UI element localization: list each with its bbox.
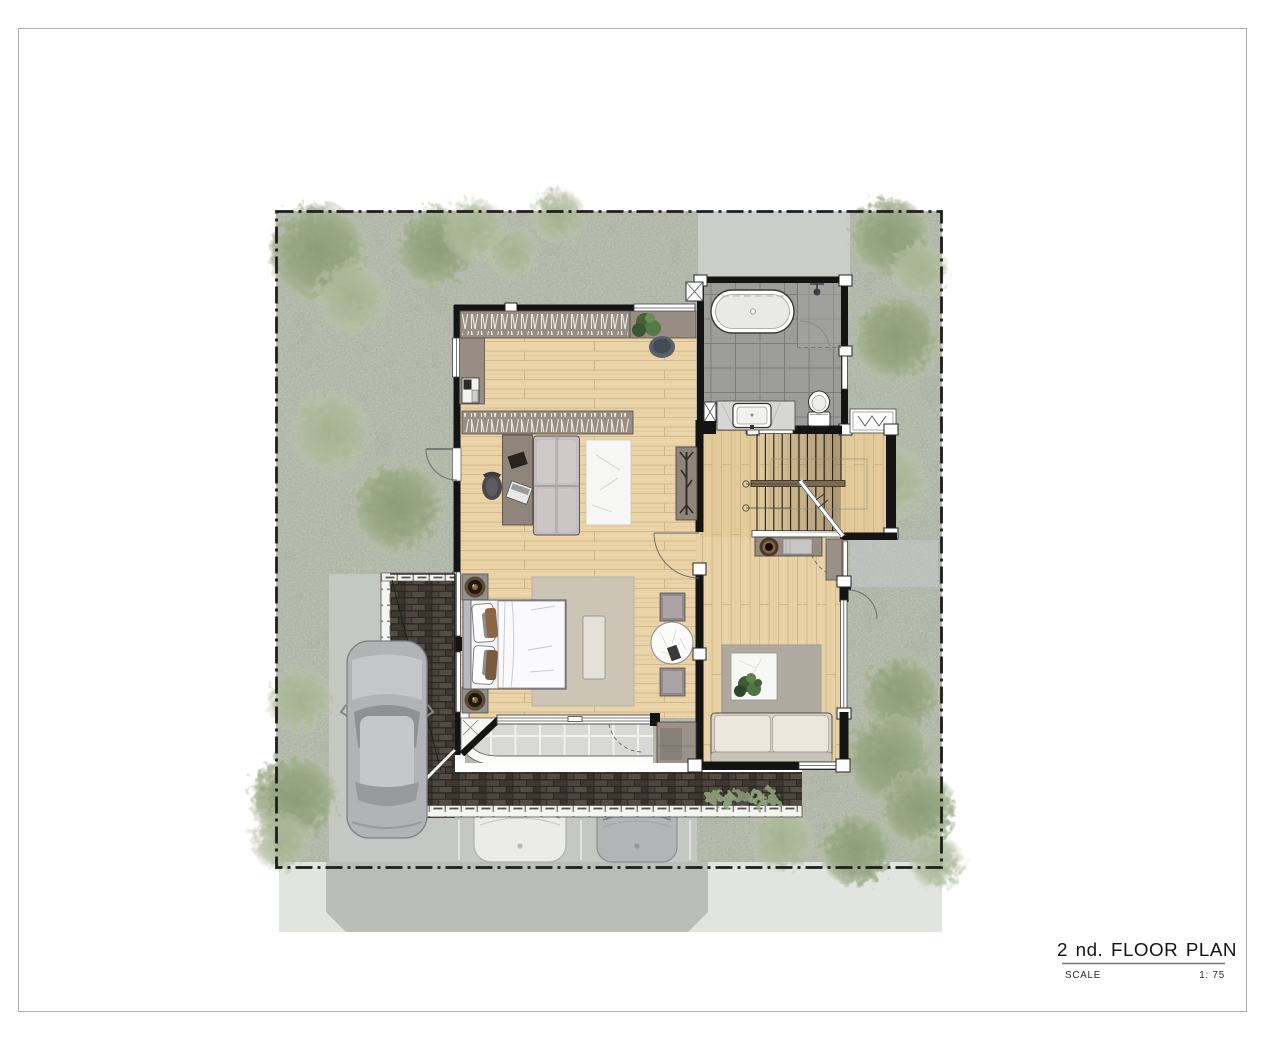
svg-text:2 nd. FLOOR PLAN: 2 nd. FLOOR PLAN	[1057, 939, 1237, 960]
svg-text:SCALE: SCALE	[1065, 970, 1101, 981]
svg-text:1: 75: 1: 75	[1199, 970, 1225, 981]
